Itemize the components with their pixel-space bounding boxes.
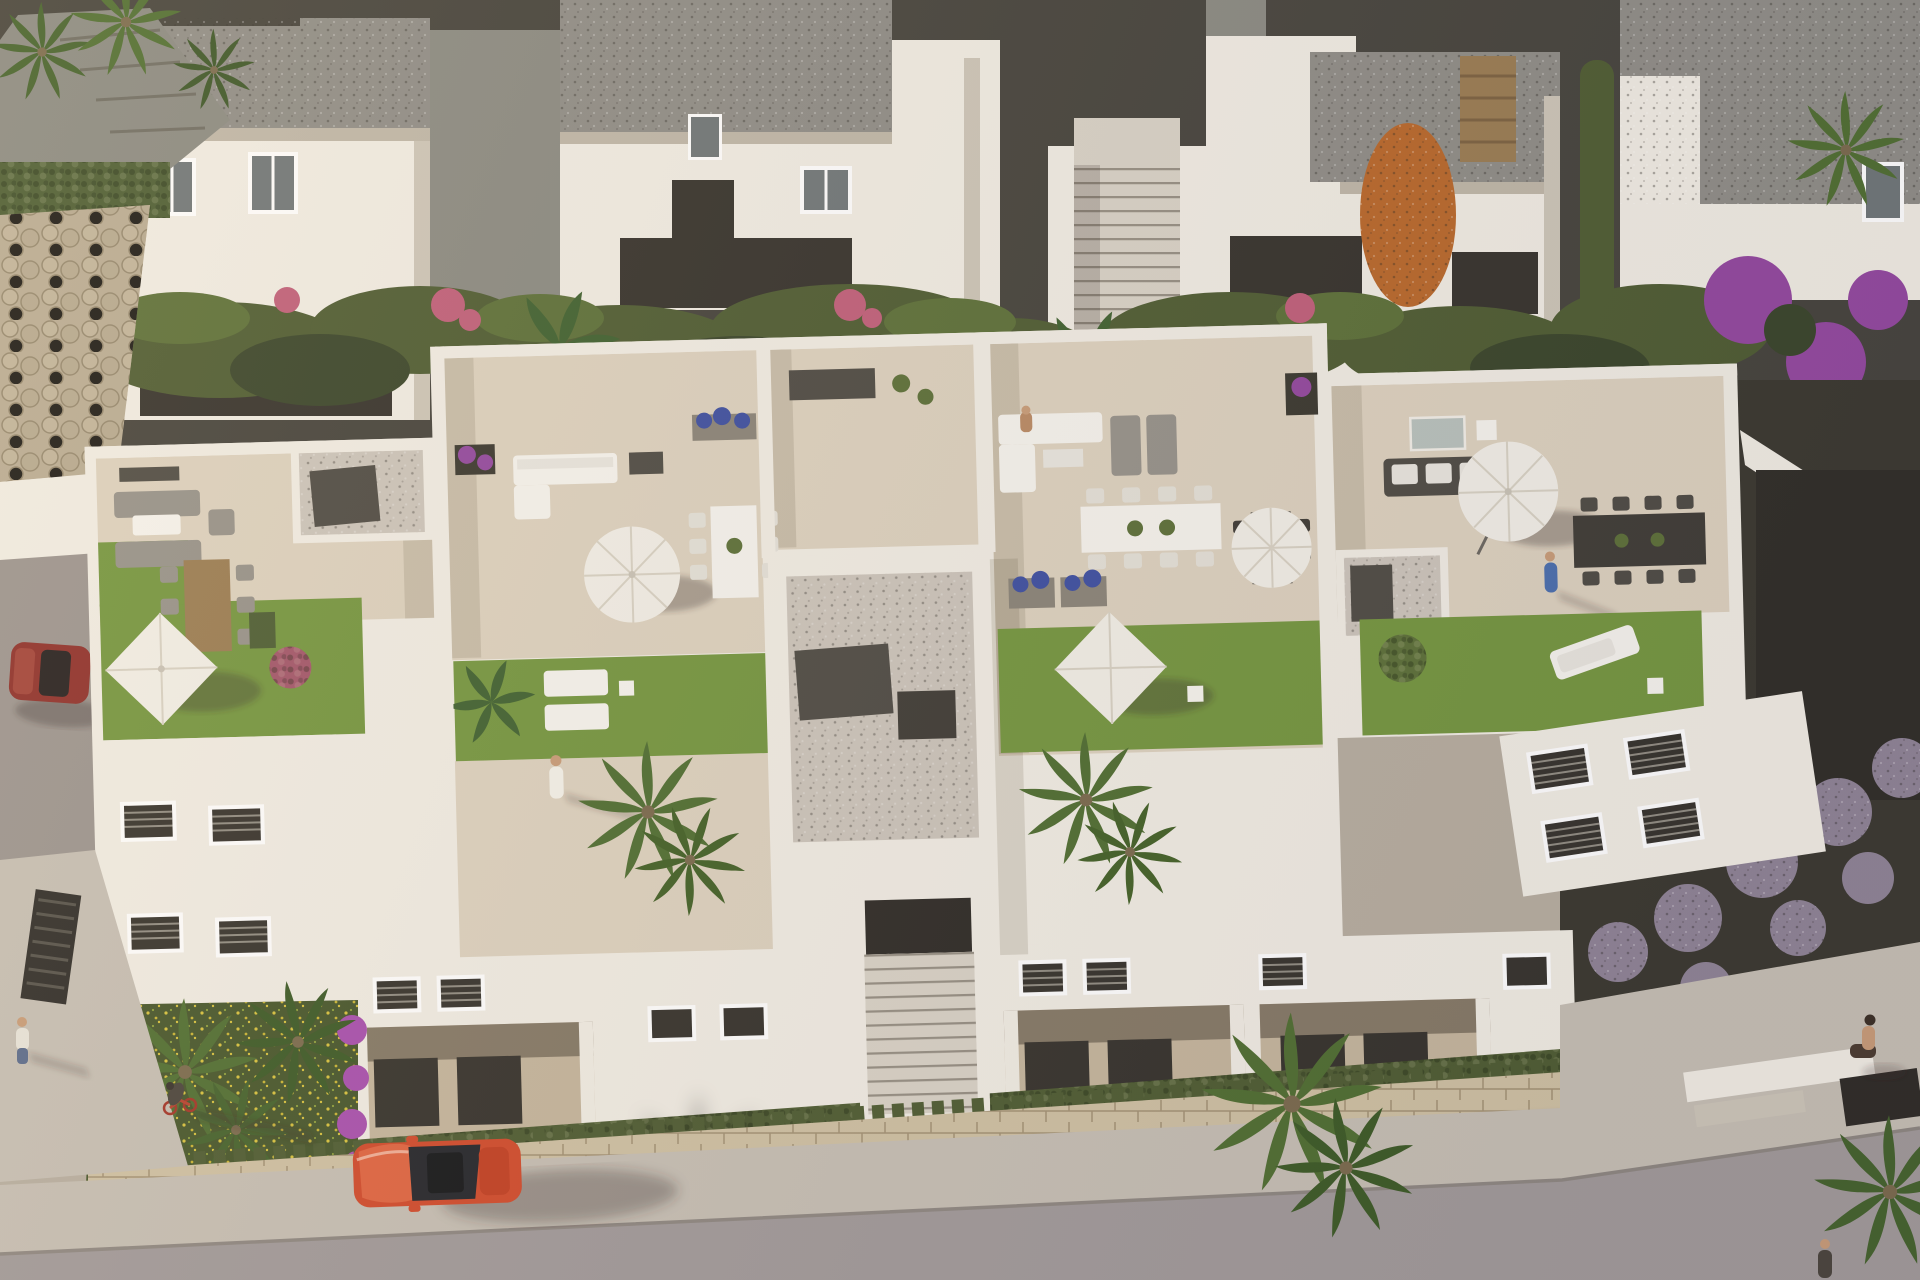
- architectural-render: [0, 0, 1920, 1280]
- light-overlay: [0, 0, 1920, 1280]
- aerial-render-canvas: [0, 0, 1920, 1280]
